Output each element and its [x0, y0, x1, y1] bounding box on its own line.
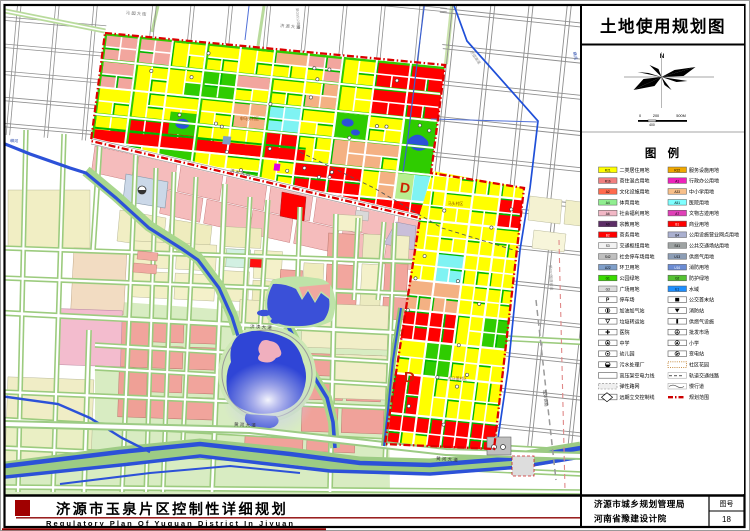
svg-text:污水处理厂: 污水处理厂: [620, 362, 645, 369]
svg-text:商业用地: 商业用地: [689, 221, 709, 228]
svg-text:B4: B4: [675, 233, 679, 237]
svg-text:商住混合用地: 商住混合用地: [620, 178, 650, 185]
svg-text:社会停车场用地: 社会停车场用地: [620, 253, 655, 260]
svg-text:幼儿园: 幼儿园: [620, 351, 635, 358]
svg-text:慢行道: 慢行道: [689, 383, 704, 390]
svg-text:行政办公用地: 行政办公用地: [689, 178, 719, 185]
svg-text:U16: U16: [674, 266, 680, 270]
svg-text:18: 18: [722, 515, 731, 524]
svg-text:U13: U13: [674, 255, 680, 259]
svg-text:D: D: [404, 369, 415, 386]
svg-text:S3: S3: [606, 244, 610, 248]
svg-text:文物古迹用地: 文物古迹用地: [689, 210, 719, 217]
svg-text:A7: A7: [675, 212, 679, 216]
svg-text:河南省豫建设计院: 河南省豫建设计院: [594, 513, 667, 524]
svg-text:公共交通场站用地: 公共交通场站用地: [689, 243, 729, 250]
svg-text:广场用地: 广场用地: [620, 286, 640, 293]
svg-text:消防用地: 消防用地: [689, 264, 709, 271]
svg-text:申马头村区: 申马头村区: [240, 116, 259, 121]
svg-text:N: N: [660, 53, 665, 60]
svg-text:中学: 中学: [620, 340, 630, 347]
svg-text:Regulatory Plan Of Yuquan Dist: Regulatory Plan Of Yuquan District In Ji…: [46, 519, 295, 528]
svg-text:消防站: 消防站: [689, 308, 704, 315]
svg-text:200: 200: [653, 114, 659, 118]
svg-text:小学: 小学: [689, 340, 699, 347]
svg-text:商务用地: 商务用地: [620, 232, 640, 239]
svg-text:A2: A2: [606, 190, 610, 194]
svg-text:A6: A6: [606, 212, 610, 216]
svg-text:公园绿地: 公园绿地: [620, 275, 640, 282]
svg-text:土地使用规划图: 土地使用规划图: [600, 16, 726, 36]
svg-text:500M: 500M: [676, 114, 686, 118]
svg-text:B1: B1: [675, 223, 679, 227]
svg-text:A33: A33: [674, 190, 680, 194]
svg-text:医院: 医院: [620, 329, 630, 336]
svg-text:400: 400: [649, 123, 655, 127]
svg-text:济源市城乡规划管理局: 济源市城乡规划管理局: [594, 498, 685, 509]
svg-text:停车场: 停车场: [620, 297, 635, 304]
svg-text:A1: A1: [675, 179, 679, 183]
svg-text:S42: S42: [605, 255, 611, 259]
svg-text:马头村区: 马头村区: [448, 201, 463, 206]
svg-text:高压架空电力线: 高压架空电力线: [620, 372, 655, 379]
svg-text:U22: U22: [605, 266, 611, 270]
svg-text:二类居住用地: 二类居住用地: [620, 167, 650, 174]
svg-text:D: D: [399, 179, 411, 196]
svg-text:G3: G3: [606, 288, 610, 292]
svg-text:批发市场: 批发市场: [689, 329, 709, 336]
svg-text:供燃气设施: 供燃气设施: [689, 318, 714, 325]
svg-text:蟒河: 蟒河: [10, 137, 18, 144]
svg-text:交通枢纽用地: 交通枢纽用地: [620, 243, 650, 250]
svg-text:体育用地: 体育用地: [620, 199, 640, 206]
svg-text:图 例: 图 例: [645, 146, 683, 160]
svg-text:供燃气用地: 供燃气用地: [689, 253, 714, 260]
svg-text:文化设施用地: 文化设施用地: [620, 188, 650, 195]
svg-text:R22: R22: [674, 169, 680, 173]
svg-text:医院用地: 医院用地: [689, 199, 709, 206]
svg-text:服务设施用地: 服务设施用地: [689, 167, 719, 174]
svg-text:垃圾转运站: 垃圾转运站: [620, 318, 645, 325]
svg-text:加油加气站: 加油加气站: [620, 308, 645, 315]
svg-text:A51: A51: [674, 201, 680, 205]
svg-text:防护绿地: 防护绿地: [689, 275, 709, 282]
svg-text:轨道交通线路: 轨道交通线路: [689, 372, 719, 379]
svg-text:社区花园: 社区花园: [689, 362, 709, 369]
svg-text:A4: A4: [606, 201, 610, 205]
svg-text:弹性路网: 弹性路网: [620, 383, 640, 390]
svg-text:B2: B2: [606, 233, 610, 237]
svg-text:远期立交控制线: 远期立交控制线: [620, 394, 655, 401]
svg-text:宗教用地: 宗教用地: [620, 221, 640, 228]
svg-text:公用设施营业网点用地: 公用设施营业网点用地: [689, 232, 739, 239]
svg-text:规划范围: 规划范围: [689, 394, 709, 401]
svg-text:社会福利用地: 社会福利用地: [620, 210, 650, 217]
svg-text:S41: S41: [674, 244, 680, 248]
svg-text:A9: A9: [606, 223, 610, 227]
svg-text:图号: 图号: [720, 500, 734, 508]
svg-text:0: 0: [639, 114, 641, 118]
svg-text:环卫用地: 环卫用地: [620, 264, 640, 271]
svg-text:G1: G1: [606, 277, 610, 281]
svg-text:G2: G2: [675, 277, 679, 281]
svg-text:R1b: R1b: [605, 179, 611, 183]
svg-text:东马蓬村区: 东马蓬村区: [448, 376, 467, 381]
svg-text:E1: E1: [675, 288, 679, 292]
svg-text:济源市玉泉片区控制性详细规划: 济源市玉泉片区控制性详细规划: [56, 501, 288, 518]
svg-text:中小学用地: 中小学用地: [689, 188, 714, 195]
svg-text:公交首末站: 公交首末站: [689, 297, 714, 304]
svg-text:变电站: 变电站: [689, 351, 704, 358]
svg-text:水域: 水域: [689, 286, 699, 293]
svg-text:R21: R21: [605, 169, 611, 173]
